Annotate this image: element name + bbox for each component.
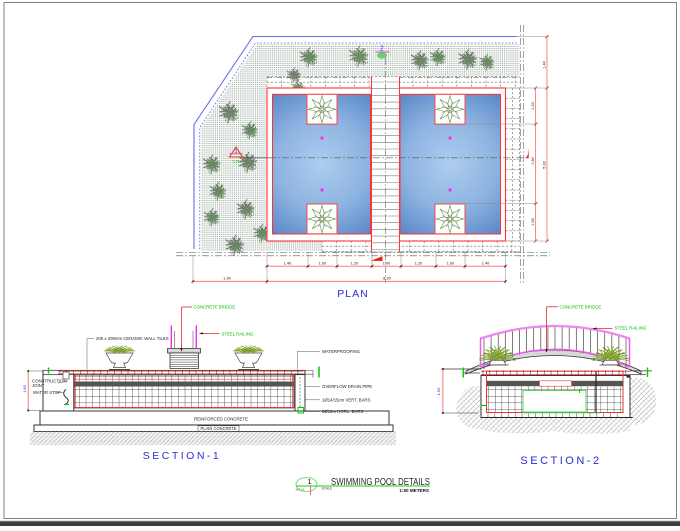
svg-text:1.50: 1.50: [436, 387, 441, 396]
svg-text:1.90: 1.90: [223, 277, 230, 281]
svg-text:1.40: 1.40: [284, 262, 291, 266]
svg-text:8.20: 8.20: [383, 277, 390, 281]
svg-text:PLAN: PLAN: [337, 288, 368, 300]
svg-text:8Ø12m HORL. BARS: 8Ø12m HORL. BARS: [322, 409, 363, 414]
svg-text:CONCRETE BRIDGE: CONCRETE BRIDGE: [194, 305, 236, 310]
svg-text:1Ø14/15cm VERT. BARS: 1Ø14/15cm VERT. BARS: [322, 398, 371, 403]
svg-text:1.00: 1.00: [383, 262, 390, 266]
svg-text:1.20: 1.20: [351, 262, 358, 266]
svg-text:OVERFLOW DRAIN PIPE: OVERFLOW DRAIN PIPE: [322, 384, 372, 389]
svg-text:JOINT: JOINT: [32, 383, 45, 388]
svg-text:1.00: 1.00: [447, 262, 454, 266]
svg-text:SECTION-1: SECTION-1: [143, 450, 222, 462]
svg-text:2: 2: [380, 46, 384, 53]
svg-text:WATERPROOFING: WATERPROOFING: [322, 349, 361, 354]
svg-text:1.20: 1.20: [531, 102, 535, 109]
svg-text:STEEL RAILING: STEEL RAILING: [615, 326, 647, 331]
svg-text:PLAIN CONCRETE: PLAIN CONCRETE: [201, 426, 237, 431]
svg-text:1.80: 1.80: [22, 384, 27, 393]
svg-text:1:25: 1:25: [233, 160, 240, 164]
svg-text:5.30: 5.30: [543, 161, 547, 168]
svg-text:REINFORCED CONCRETE: REINFORCED CONCRETE: [194, 417, 248, 422]
svg-text:1:50 METERS: 1:50 METERS: [399, 488, 429, 493]
svg-text:200 x 200mm CERAMIC WALL TILES: 200 x 200mm CERAMIC WALL TILES: [96, 336, 169, 341]
svg-text:1.80: 1.80: [531, 157, 535, 164]
svg-text:1.40: 1.40: [482, 262, 489, 266]
svg-text:W1 10: W1 10: [296, 488, 305, 492]
svg-text:1.50: 1.50: [531, 218, 535, 225]
svg-text:1: 1: [234, 149, 237, 155]
svg-text:SWIMMING POOL DETAILS: SWIMMING POOL DETAILS: [331, 477, 430, 488]
svg-text:1.20: 1.20: [415, 262, 422, 266]
svg-text:1: 1: [307, 477, 311, 486]
svg-text:SECTION-2: SECTION-2: [520, 455, 601, 467]
svg-text:CONCRETE BRIDGE: CONCRETE BRIDGE: [560, 304, 602, 309]
svg-text:STEEL RAILING: STEEL RAILING: [222, 331, 254, 336]
svg-text:1.40: 1.40: [543, 61, 547, 68]
svg-text:1.00: 1.00: [319, 262, 326, 266]
